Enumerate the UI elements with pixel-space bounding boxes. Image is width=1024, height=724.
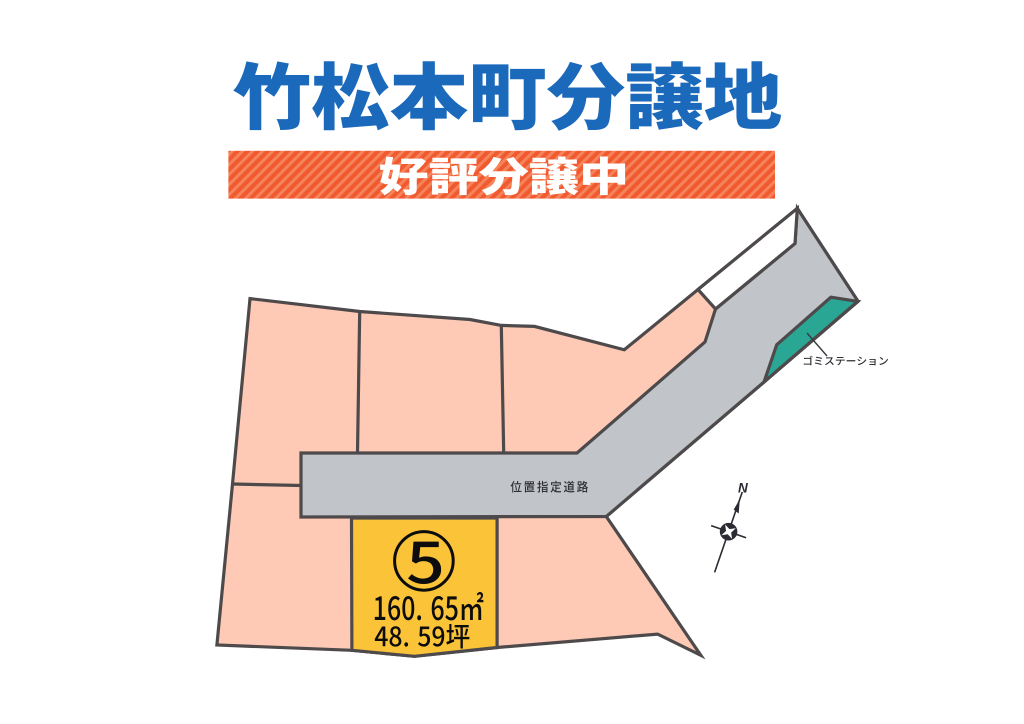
svg-text:N: N bbox=[738, 481, 748, 496]
